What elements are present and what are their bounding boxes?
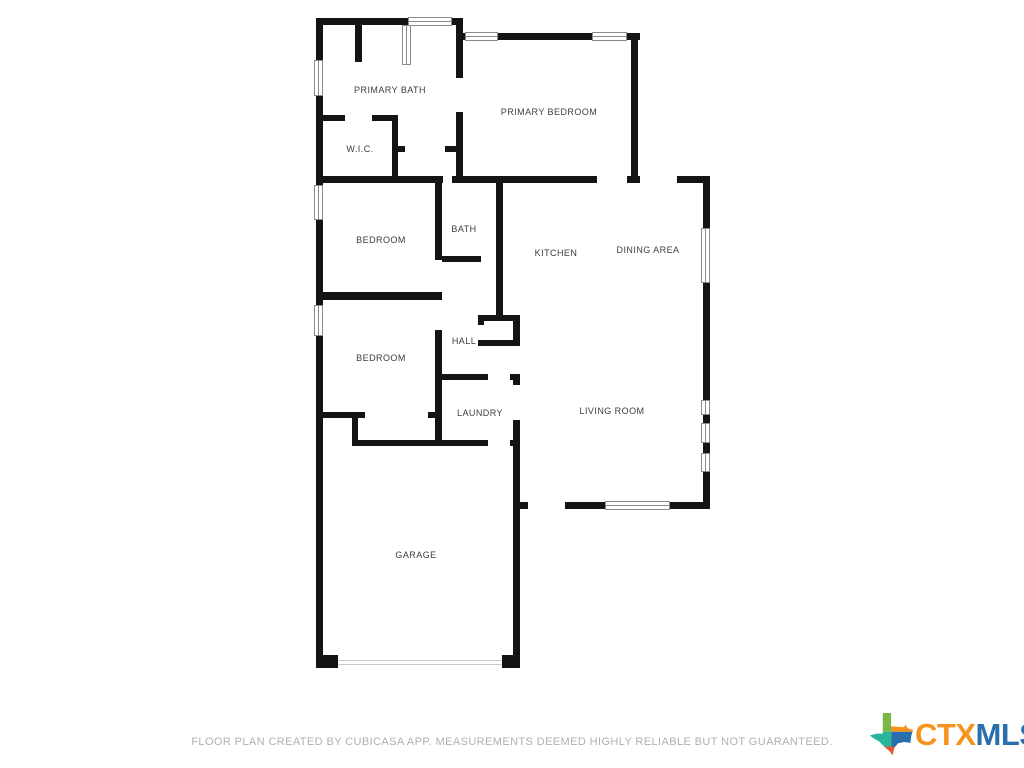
window [701,228,710,283]
room-label-laundry: LAUNDRY [457,408,503,418]
wall-segment [456,18,463,78]
window [701,453,710,472]
wall-segment [355,25,362,62]
window [701,423,710,443]
wall-segment [398,146,405,152]
wall-segment [670,502,710,509]
wall-segment [452,176,597,183]
wall-segment [352,412,358,446]
wall-segment [321,292,442,300]
window [465,32,498,41]
wall-segment [428,412,442,418]
wall-segment [316,336,323,662]
wall-segment [513,316,520,345]
wall-segment [510,374,520,380]
wall-segment [496,176,503,315]
room-label-dining-area: DINING AREA [617,245,680,255]
wall-segment [703,443,710,453]
ctxmls-logo: CTXMLS [869,710,1019,760]
room-label-bedroom-2: BEDROOM [356,353,406,363]
wall-segment [435,374,488,380]
room-label-primary-bedroom: PRIMARY BEDROOM [501,107,597,117]
room-label-wic: W.I.C. [346,144,373,154]
wall-segment [565,502,605,509]
wall-segment [478,315,484,325]
wall-segment [703,415,710,423]
room-label-kitchen: KITCHEN [535,248,578,258]
window [314,305,323,336]
garage-door-opening [338,660,502,665]
room-label-bedroom-1: BEDROOM [356,235,406,245]
window [314,185,323,220]
room-label-garage: GARAGE [395,550,436,560]
wall-segment [456,112,463,176]
wall-segment [703,176,710,228]
wall-segment [703,283,710,400]
window [314,60,323,96]
ctx-text: CTX [915,717,976,752]
window [592,32,627,41]
window [701,400,710,415]
window [402,25,411,65]
wall-segment [435,330,442,446]
wall-segment [510,440,520,446]
room-label-primary-bath: PRIMARY BATH [354,85,426,95]
ctxmls-wordmark: CTXMLS [915,712,1024,758]
wall-segment [435,176,442,260]
wall-segment [316,18,408,25]
wall-segment [502,655,520,668]
window [605,501,670,510]
wall-segment [316,96,323,185]
wall-segment [513,420,520,668]
wall-segment [442,256,481,262]
wall-segment [321,115,345,121]
wall-segment [316,176,443,183]
wall-segment [631,33,638,180]
wall-segment [498,33,592,40]
room-label-hall: HALL [452,336,476,346]
wall-segment [352,440,488,446]
room-label-living-room: LIVING ROOM [580,406,645,416]
room-label-bath: BATH [451,224,476,234]
wall-segment [627,176,640,183]
wall-segment [316,655,338,668]
floor-plan: PRIMARY BATH W.I.C. PRIMARY BEDROOM BEDR… [0,0,1024,768]
mls-text: MLS [976,717,1024,752]
window [408,17,452,26]
wall-segment [445,146,463,152]
texas-state-icon [869,712,915,759]
wall-segment [456,33,465,40]
